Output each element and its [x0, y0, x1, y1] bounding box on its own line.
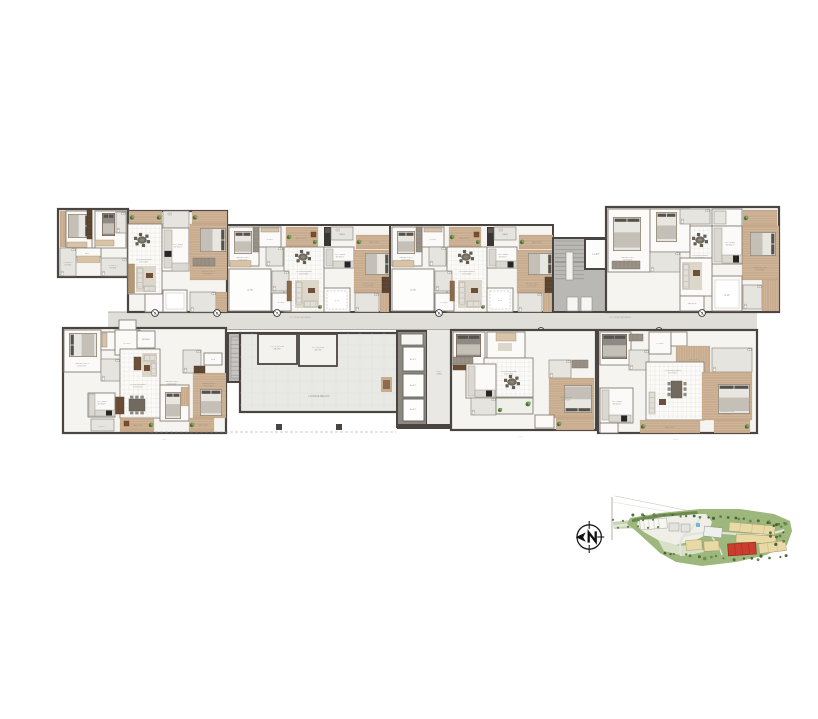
svg-text:8'0"X10'2": 8'0"X10'2": [726, 245, 735, 247]
svg-text:8'0"X10'2": 8'0"X10'2": [499, 257, 508, 259]
svg-text:WICK IN: WICK IN: [689, 359, 697, 361]
svg-text:WASH: WASH: [339, 233, 345, 236]
svg-text:BALCONY: BALCONY: [665, 426, 676, 429]
svg-text:SERVANT: SERVANT: [142, 338, 151, 341]
svg-text:8'0"X10'2": 8'0"X10'2": [174, 247, 183, 249]
svg-text:9: 9: [154, 311, 156, 315]
svg-text:SERVICE: SERVICE: [687, 303, 697, 305]
svg-text:9'10"X12'9": 9'10"X12'9": [204, 386, 214, 388]
svg-text:STUDY: STUDY: [266, 239, 274, 241]
svg-text:8'0"X10'0": 8'0"X10'0": [98, 404, 107, 406]
svg-text:5'0"X8'0": 5'0"X8'0": [64, 265, 72, 267]
svg-text:FOYER: FOYER: [441, 302, 448, 304]
svg-text:11'0"X12'4": 11'0"X12'4": [203, 274, 213, 276]
svg-text:BALCONY: BALCONY: [369, 241, 380, 244]
svg-text:8: 8: [216, 311, 218, 315]
svg-text:8'0"X10'2": 8'0"X10'2": [336, 257, 345, 259]
svg-text:BALCONY: BALCONY: [133, 424, 143, 427]
svg-text:11'0"X12'0": 11'0"X12'0": [561, 400, 571, 402]
svg-text:6.75: 6.75: [247, 288, 253, 292]
svg-text:BALCONY: BALCONY: [532, 241, 543, 244]
svg-text:2 LIFT: 2 LIFT: [592, 253, 600, 256]
svg-text:W.D.: W.D.: [85, 253, 90, 255]
svg-text:11'7"X12'0": 11'7"X12'0": [755, 270, 765, 272]
svg-text:UTILITY: UTILITY: [98, 426, 106, 428]
svg-text:5: 5: [701, 311, 703, 315]
svg-text:NOK: NOK: [211, 359, 216, 361]
svg-text:11'0"X12'0": 11'0"X12'0": [623, 260, 633, 262]
svg-text:A LIFT: A LIFT: [410, 358, 417, 361]
svg-text:BALCONY: BALCONY: [459, 237, 470, 240]
svg-text:LOUNGE BELOW: LOUNGE BELOW: [308, 394, 330, 398]
svg-text:10'2"X11'0": 10'2"X11'0": [527, 286, 537, 288]
svg-text:24'-7": 24'-7": [162, 439, 168, 441]
svg-text:10'0"X11'5": 10'0"X11'5": [167, 384, 177, 386]
svg-text:10'0"X11'5": 10'0"X11'5": [77, 366, 87, 368]
svg-text:11'7"X12'0": 11'7"X12'0": [722, 414, 732, 416]
svg-text:A LIFT: A LIFT: [410, 384, 417, 387]
svg-text:BELOW: BELOW: [315, 350, 322, 352]
svg-text:FOYER: FOYER: [124, 343, 131, 345]
svg-text:BALCONY: BALCONY: [198, 424, 208, 427]
svg-text:FOYER: FOYER: [657, 343, 664, 345]
svg-text:6.75: 6.75: [410, 288, 416, 292]
svg-text:11'0"X16'5": 11'0"X16'5": [139, 262, 149, 264]
svg-text:11'0"X19'5": 11'0"X19'5": [668, 373, 678, 375]
svg-text:FOYER: FOYER: [278, 302, 285, 304]
svg-text:21'-6": 21'-6": [517, 436, 523, 438]
svg-text:A LIFT: A LIFT: [410, 408, 417, 411]
svg-text:6: 6: [438, 311, 440, 315]
svg-text:LOBBY: LOBBY: [436, 374, 443, 376]
svg-text:10'2"X11'0": 10'2"X11'0": [364, 286, 374, 288]
svg-text:23'-2": 23'-2": [673, 439, 679, 441]
svg-text:0.15: 0.15: [725, 294, 730, 297]
svg-text:5'-0" WIDE PASSAGE: 5'-0" WIDE PASSAGE: [289, 316, 311, 319]
svg-text:11'0"X23'0": 11'0"X23'0": [133, 387, 143, 389]
svg-text:BALCONY: BALCONY: [296, 237, 307, 240]
svg-text:5'0"X8'0": 5'0"X8'0": [109, 268, 117, 270]
svg-text:11'0"X16'5": 11'0"X16'5": [299, 274, 309, 276]
svg-text:STUDY: STUDY: [429, 239, 437, 241]
svg-text:WASH: WASH: [502, 233, 508, 236]
svg-text:BELOW: BELOW: [274, 349, 281, 351]
svg-text:5'-0" WIDE PASSAGE: 5'-0" WIDE PASSAGE: [609, 316, 631, 319]
svg-text:8'0"X10'0": 8'0"X10'0": [613, 404, 622, 406]
svg-text:11'0"X16'5": 11'0"X16'5": [462, 274, 472, 276]
svg-text:7: 7: [276, 311, 278, 315]
